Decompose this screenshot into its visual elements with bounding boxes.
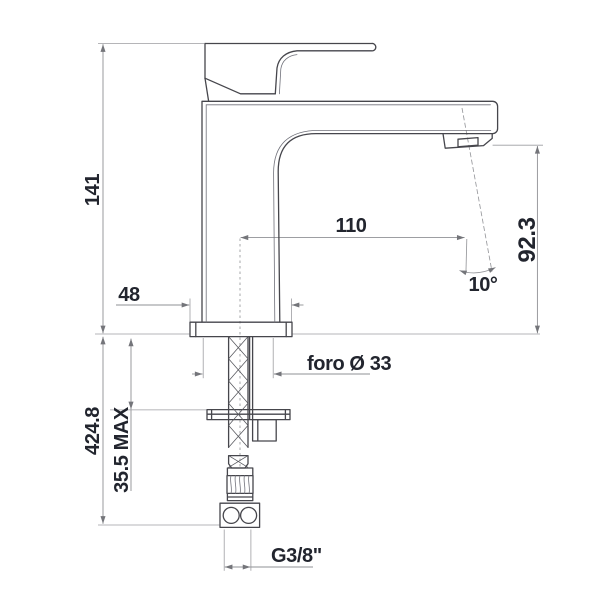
spout-under-inner (274, 130, 491, 322)
dim-label-48: 48 (118, 284, 140, 306)
faucet-technical-drawing: 141 424.8 35.5 MAX 48 110 92.3 10° foro … (0, 0, 600, 600)
shank-thread-hatch (229, 337, 248, 468)
dim-label-hole-foro33: foro Ø 33 (307, 353, 391, 375)
dim-label-110: 110 (335, 215, 366, 237)
faucet-inner-lines (206, 55, 491, 494)
connector-nut-left (223, 507, 239, 523)
dimension-lines (103, 44, 537, 567)
hose-tail-pipe (250, 337, 253, 420)
body-spout-outline (202, 101, 498, 322)
outlet-vertical-reference (466, 239, 467, 271)
dim-label-355-max: 35.5 MAX (111, 406, 133, 493)
mounting-nut (253, 420, 277, 441)
dim-label-g38: G3/8" (271, 545, 322, 567)
hose-collar-top (227, 468, 252, 476)
base-flange (190, 322, 292, 336)
connector-nut-right (241, 507, 257, 523)
handle-neck-inner (279, 55, 297, 94)
angle-arc (460, 268, 496, 273)
braid-strands (231, 476, 250, 494)
faucet-outline (190, 43, 498, 527)
dim-label-angle-10deg: 10° (468, 274, 497, 296)
hatch-lines (229, 337, 248, 468)
hose-collar-bottom (227, 493, 252, 500)
handle-base-bottom (205, 78, 275, 94)
handle-lever (205, 43, 376, 93)
technical-drawing-page: 141 424.8 35.5 MAX 48 110 92.3 10° foro … (0, 0, 600, 600)
dim-label-923: 92.3 (514, 217, 541, 262)
extension-lines (95, 44, 543, 571)
handle-base-tip (205, 78, 209, 101)
dim-label-4248: 424.8 (82, 407, 104, 455)
base-flange-detail (196, 322, 286, 336)
dim-label-height-141: 141 (82, 174, 104, 206)
body-left-inner (206, 105, 490, 322)
